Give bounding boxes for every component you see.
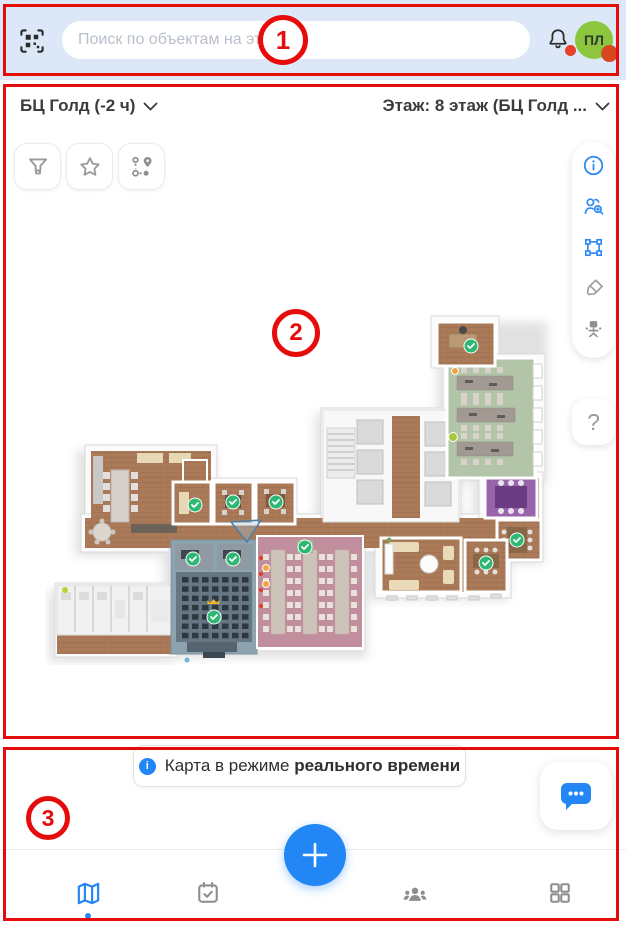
pink-office bbox=[257, 536, 363, 648]
find-person-button[interactable] bbox=[581, 194, 606, 224]
people-icon bbox=[400, 879, 430, 909]
info-button[interactable] bbox=[581, 153, 606, 183]
notification-badge bbox=[565, 45, 576, 56]
apps-grid-icon bbox=[546, 879, 574, 907]
tasks-icon bbox=[194, 879, 222, 907]
building-selector-label: БЦ Голд (-2 ч) bbox=[20, 96, 135, 116]
chat-button[interactable] bbox=[540, 762, 612, 830]
tab-map-active-dot bbox=[85, 913, 91, 919]
star-icon bbox=[77, 154, 103, 180]
notifications-button[interactable] bbox=[545, 25, 573, 57]
filter-icon bbox=[25, 154, 51, 180]
restrooms bbox=[57, 585, 175, 635]
add-button[interactable] bbox=[284, 824, 346, 886]
avatar-status-dot bbox=[601, 45, 618, 62]
tab-map[interactable] bbox=[74, 879, 103, 908]
floor-selector[interactable]: Этаж: 8 этаж (БЦ Голд ... bbox=[383, 96, 610, 116]
chevron-down-icon bbox=[595, 102, 610, 111]
annotation-circle-3: 3 bbox=[26, 796, 70, 840]
info-dot-icon: i bbox=[139, 758, 156, 775]
tab-people[interactable] bbox=[400, 879, 430, 909]
chat-icon bbox=[558, 780, 594, 812]
plus-icon bbox=[300, 840, 330, 870]
building-selector[interactable]: БЦ Голд (-2 ч) bbox=[20, 96, 158, 116]
top-bar: ПЛ bbox=[0, 0, 626, 80]
purple-room bbox=[485, 478, 537, 518]
chevron-down-icon bbox=[143, 102, 158, 111]
avatar-initials: ПЛ bbox=[584, 32, 604, 48]
filter-button[interactable] bbox=[14, 143, 61, 190]
qr-scan-icon[interactable] bbox=[16, 25, 48, 57]
tab-tasks[interactable] bbox=[194, 879, 222, 907]
tab-apps[interactable] bbox=[546, 879, 574, 907]
lounge bbox=[381, 538, 461, 593]
select-area-icon bbox=[581, 235, 606, 260]
select-area-button[interactable] bbox=[581, 235, 606, 265]
realtime-banner: i Карта в режиме реального времени bbox=[133, 745, 466, 787]
floor-plan-3d[interactable] bbox=[45, 300, 585, 665]
floor-selector-label: Этаж: 8 этаж (БЦ Голд ... bbox=[383, 96, 587, 116]
search-input[interactable] bbox=[62, 21, 530, 59]
elevator-core bbox=[323, 410, 459, 522]
auditorium bbox=[171, 540, 257, 663]
help-label: ? bbox=[587, 409, 600, 436]
info-icon bbox=[581, 153, 606, 178]
green-office bbox=[447, 358, 542, 478]
route-button[interactable] bbox=[118, 143, 165, 190]
avatar[interactable]: ПЛ bbox=[575, 21, 613, 59]
highlighter-icon bbox=[581, 276, 606, 301]
realtime-banner-text: Карта в режиме реального времени bbox=[165, 756, 460, 776]
favorites-button[interactable] bbox=[66, 143, 113, 190]
map-icon bbox=[74, 879, 103, 908]
route-icon bbox=[129, 154, 155, 180]
find-person-icon bbox=[581, 194, 606, 219]
